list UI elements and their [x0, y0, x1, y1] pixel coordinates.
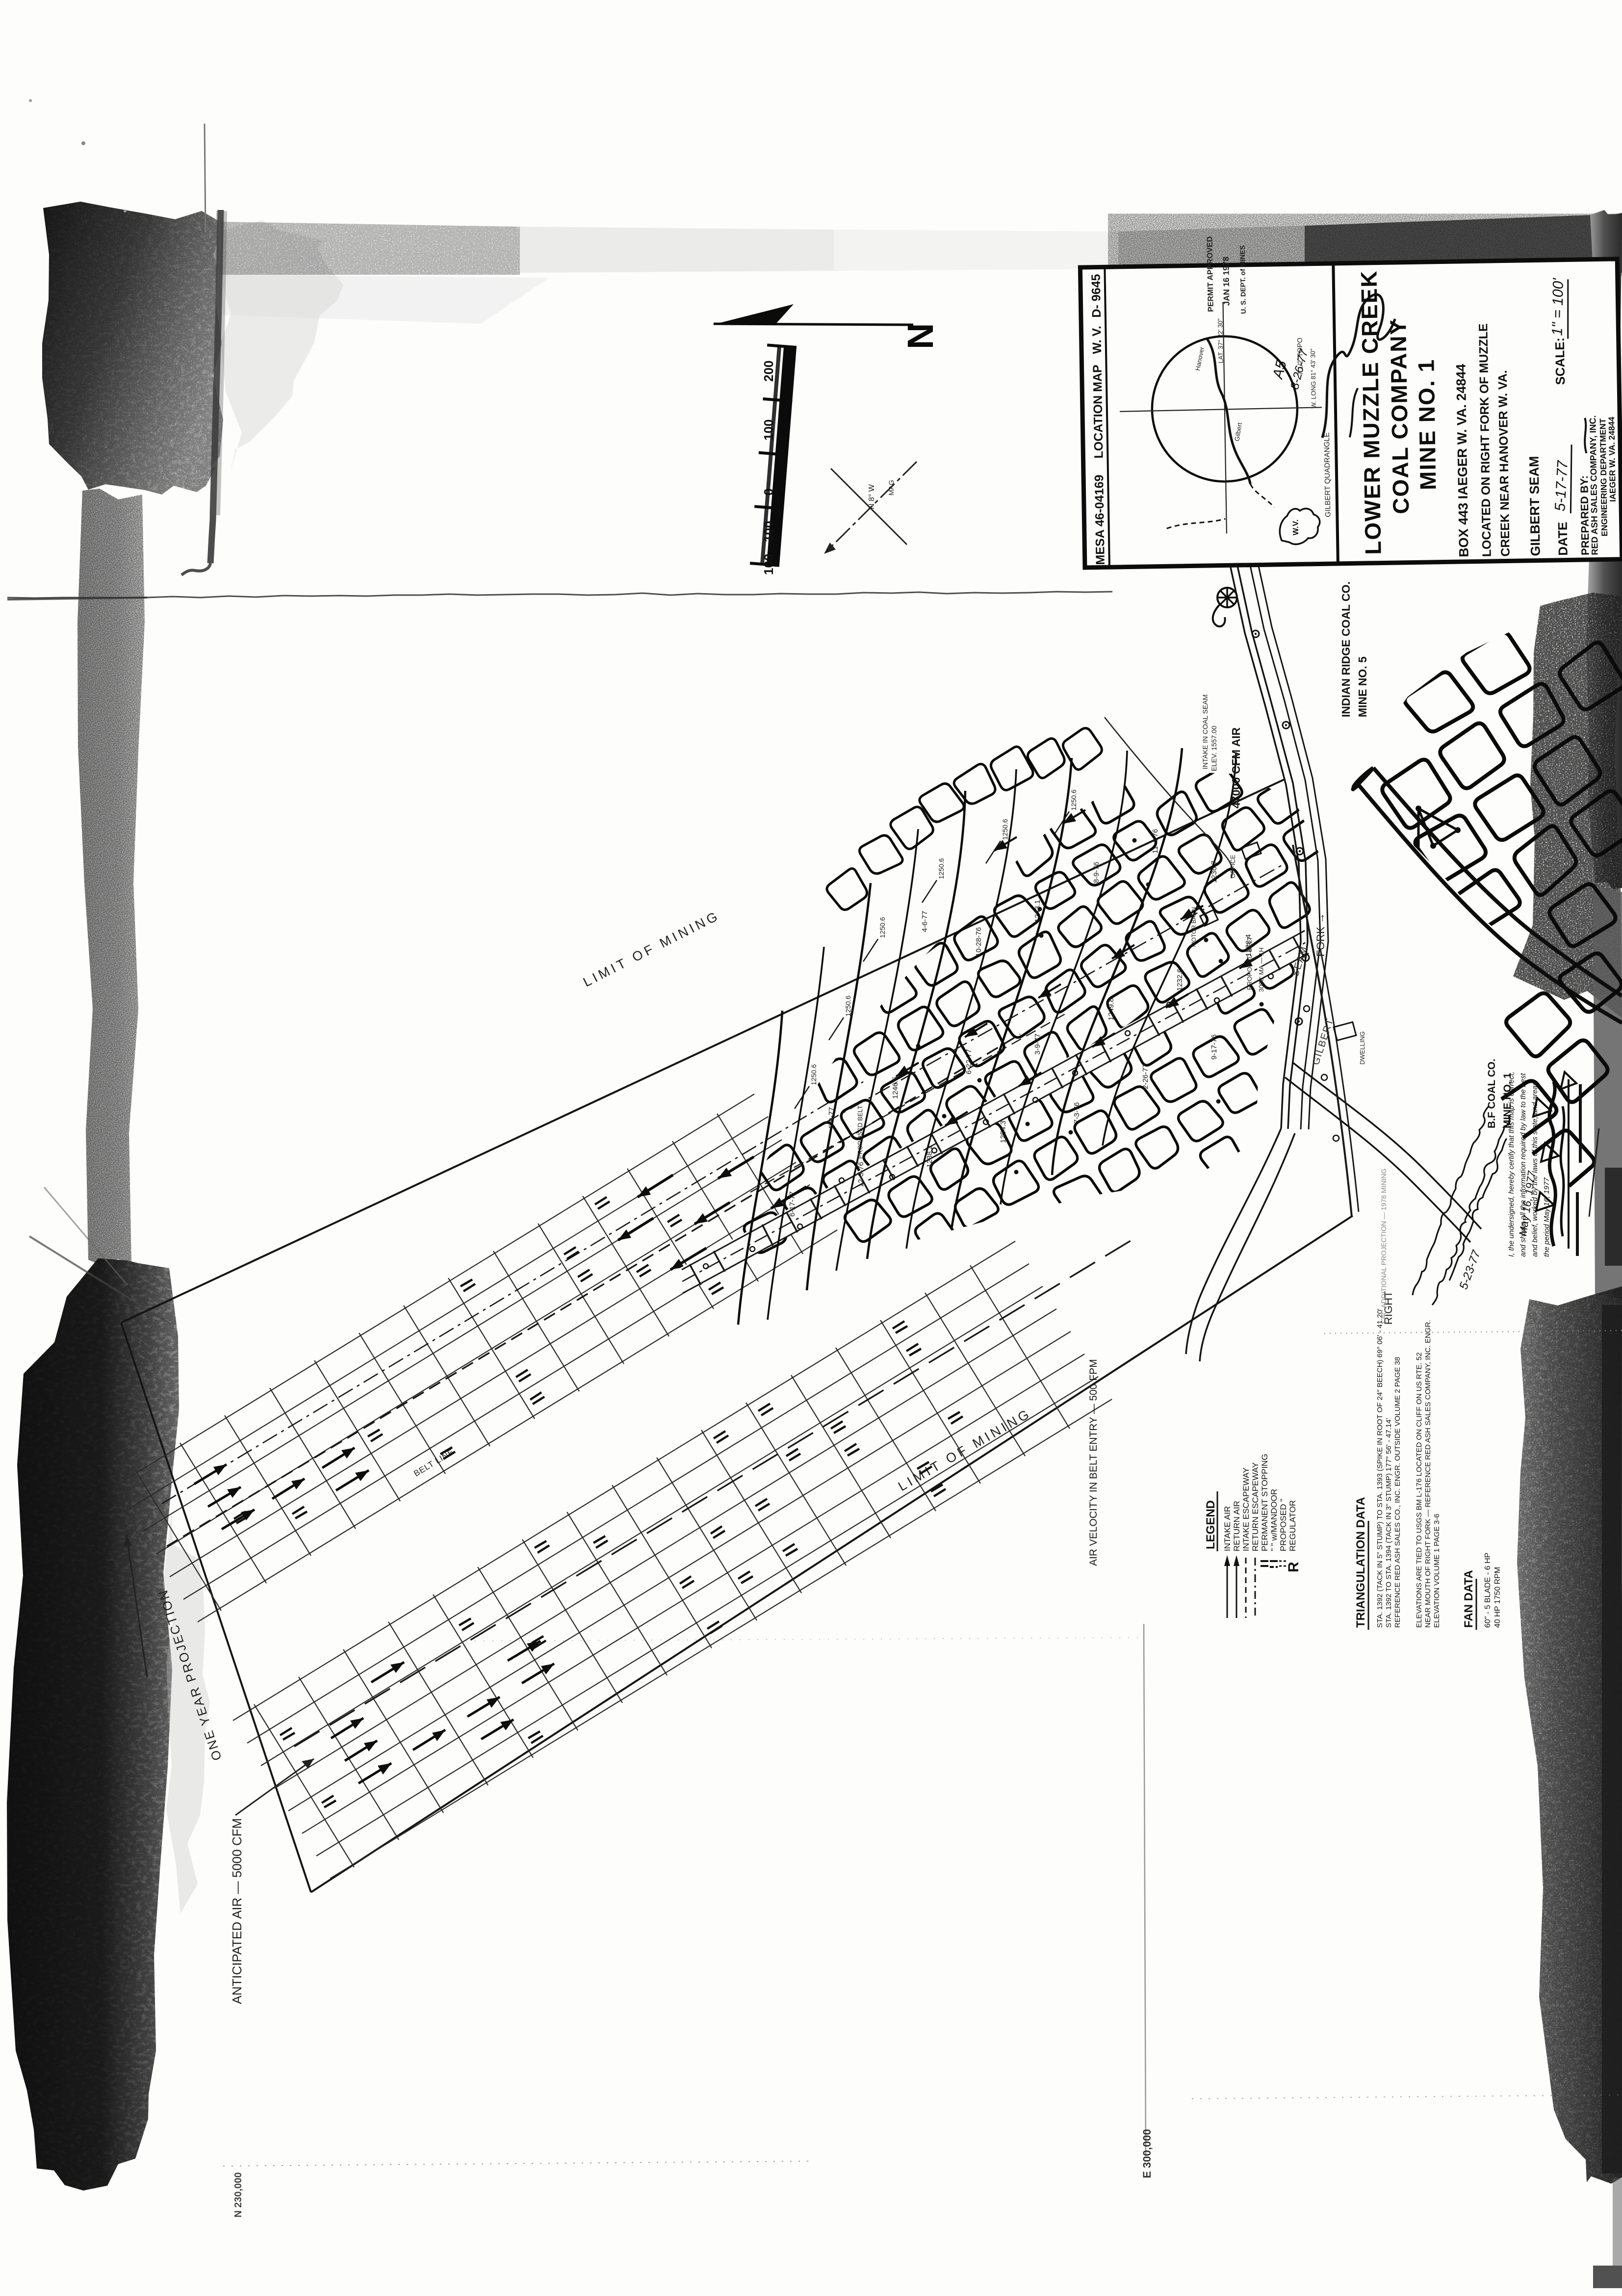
- svg-text:1250.6: 1250.6: [878, 917, 886, 938]
- svg-text:JAN 16 1978: JAN 16 1978: [1221, 257, 1232, 306]
- svg-text:D- 9645: D- 9645: [1089, 274, 1104, 317]
- svg-text:1250.6: 1250.6: [937, 858, 945, 879]
- svg-text:DWELLING: DWELLING: [1359, 1031, 1366, 1065]
- svg-text:SCALE:: SCALE:: [1552, 338, 1568, 385]
- svg-text:1232.6: 1232.6: [1176, 968, 1184, 991]
- svg-text:1" = 100': 1" = 100': [1549, 278, 1567, 336]
- svg-text:PROPOSED BELT: PROPOSED BELT: [1246, 937, 1253, 990]
- svg-text:12-3-76: 12-3-76: [857, 1162, 865, 1187]
- svg-text:5-9-77: 5-9-77: [827, 1107, 836, 1128]
- svg-text:RETURN AIR: RETURN AIR: [1232, 1501, 1241, 1551]
- svg-text:INTAKE IN COAL SEAM: INTAKE IN COAL SEAM: [1201, 695, 1209, 769]
- svg-text:ELEV. 1557.00: ELEV. 1557.00: [1210, 726, 1218, 771]
- svg-text:BOX 443 IAEGER W. VA. 2484: BOX 443 IAEGER W. VA. 24844: [1454, 364, 1471, 557]
- svg-text:1243.1: 1243.1: [1033, 900, 1042, 922]
- svg-text:N 8° W: N 8° W: [868, 484, 876, 509]
- svg-text:FAN DATA: FAN DATA: [1462, 1570, 1475, 1628]
- svg-text:2-26-77: 2-26-77: [1141, 1064, 1150, 1089]
- svg-text:6-17-77: 6-17-77: [788, 1191, 797, 1217]
- svg-text:DATE: DATE: [1555, 522, 1571, 556]
- svg-text:47000 CFM AIR: 47000 CFM AIR: [1230, 727, 1242, 809]
- svg-text:OFFICE: OFFICE: [1229, 855, 1236, 878]
- svg-text:LOWER MUZZLE CREEK: LOWER MUZZLE CREEK: [1356, 270, 1386, 555]
- svg-text:TRIANGULATION DATA: TRIANGULATION DATA: [1354, 1497, 1367, 1628]
- svg-text:PROPOSED ": PROPOSED ": [1279, 1499, 1288, 1551]
- svg-text:GILBERT QUADRANGLE: GILBERT QUADRANGLE: [1323, 432, 1333, 517]
- svg-text:100: 100: [761, 554, 776, 575]
- svg-text:LOCATION MAP: LOCATION MAP: [1090, 365, 1106, 459]
- svg-text:1254.3: 1254.3: [999, 1121, 1007, 1143]
- svg-text:INTAKE ESCAPEWAY: INTAKE ESCAPEWAY: [1241, 1467, 1251, 1551]
- svg-text:INDIAN RIDGE COAL CO.: INDIAN RIDGE COAL CO.: [1339, 581, 1352, 717]
- svg-text:0: 0: [761, 489, 776, 496]
- svg-text:5-17-77: 5-17-77: [1552, 460, 1571, 512]
- svg-text:NEAR MOUTH OF RIGHT FORK — REF: NEAR MOUTH OF RIGHT FORK — REFERENCE RED…: [1424, 1320, 1432, 1628]
- svg-text:GILBERT SEAM: GILBERT SEAM: [1526, 456, 1543, 556]
- svg-text:AIR VELOCITY IN BELT ENTRY — 5: AIR VELOCITY IN BELT ENTRY — 500 FPM: [1088, 1359, 1099, 1566]
- svg-text:9-17-76: 9-17-76: [1210, 1034, 1218, 1060]
- svg-text:" " w/MANDOO: " " w/MANDOOR: [1269, 1489, 1279, 1551]
- svg-text:200: 200: [761, 361, 776, 382]
- svg-text:6-22-77: 6-22-77: [965, 1049, 973, 1074]
- svg-text:MOTOR BARN: MOTOR BARN: [1190, 907, 1197, 947]
- svg-text:1 AC ADDITIONAL PROJECTION: 1 AC ADDITIONAL PROJECTION — 1978 MINING: [1380, 1169, 1388, 1325]
- svg-text:1250.6: 1250.6: [1070, 789, 1078, 810]
- svg-text:1250.6: 1250.6: [844, 995, 852, 1017]
- svg-text:R: R: [1286, 1562, 1302, 1572]
- svg-text:W. LONG 81° 43' 30": W. LONG 81° 43' 30": [1309, 348, 1317, 409]
- svg-text:LEGEND: LEGEND: [1204, 1500, 1217, 1549]
- svg-text:ELEVATION VOLUME 1 PAGE 3-6: ELEVATION VOLUME 1 PAGE 3-6: [1433, 1513, 1441, 1628]
- svg-text:PERMIT APPROVED: PERMIT APPROVED: [1206, 236, 1215, 312]
- svg-text:3000' MA — 1H: 3000' MA — 1H: [1258, 947, 1265, 992]
- svg-text:11-4-76: 11-4-76: [1151, 829, 1159, 854]
- svg-text:REFERENCE RED ASH SALES CO.,: REFERENCE RED ASH SALES CO., INC. ENGR. …: [1393, 1357, 1402, 1628]
- svg-text:RETURN ESCAPEWAY: RETURN ESCAPEWAY: [1251, 1462, 1260, 1551]
- svg-text:1236.7: 1236.7: [1210, 861, 1218, 883]
- svg-text:40 HP 1750 RPM: 40 HP 1750 RPM: [1493, 1567, 1502, 1628]
- svg-text:100: 100: [761, 521, 776, 542]
- svg-text:B.F COAL CO.: B.F COAL CO.: [1486, 1059, 1497, 1128]
- svg-text:LAT. 37° 22' 30": LAT. 37° 22' 30": [1216, 318, 1224, 364]
- svg-text:E 300,000: E 300,000: [1141, 2129, 1153, 2178]
- svg-text:4-6-77: 4-6-77: [921, 911, 929, 932]
- svg-text:IAEGER W. VA. 24844: IAEGER W. VA. 24844: [1607, 417, 1618, 502]
- svg-text:60" - 5 BLADE - 6 HP: 60" - 5 BLADE - 6 HP: [1484, 1553, 1492, 1628]
- svg-text:1250.6: 1250.6: [1001, 819, 1009, 840]
- svg-text:I, the undersigned, hereby cer: I, the undersigned, hereby certify that …: [1507, 1071, 1516, 1257]
- svg-text:3-9-77: 3-9-77: [1033, 1034, 1042, 1055]
- svg-text:N 230,000: N 230,000: [233, 2172, 244, 2218]
- svg-text:COAL COMPANY: COAL COMPANY: [1385, 318, 1414, 514]
- svg-text:W.V.: W.V.: [1291, 520, 1300, 536]
- svg-text:1250.6: 1250.6: [810, 1064, 818, 1085]
- svg-text:INTAKE AIR: INTAKE AIR: [1223, 1506, 1232, 1551]
- svg-text:MINE NO. 1: MINE NO. 1: [1413, 359, 1441, 491]
- svg-text:the period May 16, 1977: the period May 16, 1977: [1543, 1177, 1551, 1257]
- svg-text:CREEK NEAR HANOVER W. VA.: CREEK NEAR HANOVER W. VA.: [1496, 370, 1513, 557]
- svg-text:1246.5: 1246.5: [891, 1076, 900, 1099]
- svg-text:MESA 46-04169: MESA 46-04169: [1092, 474, 1107, 565]
- svg-text:10-28-76: 10-28-76: [975, 927, 983, 957]
- svg-text:U. S. DEPT. of MINES: U. S. DEPT. of MINES: [1238, 245, 1247, 314]
- svg-text:W. V.: W. V.: [1090, 326, 1104, 354]
- svg-text:STA. 1392 (TACK IN 5" STUMP) T: STA. 1392 (TACK IN 5" STUMP) TO STA. 139…: [1376, 1308, 1384, 1628]
- svg-text:7-3-76: 7-3-76: [1073, 1102, 1081, 1123]
- svg-text:MAG: MAG: [887, 480, 895, 496]
- svg-text:1249.8: 1249.8: [1107, 998, 1115, 1020]
- svg-text:N: N: [900, 323, 941, 349]
- svg-text:8-9-76: 8-9-76: [1092, 862, 1101, 883]
- svg-text:ANTICIPATED AIR — 5000 CFM: ANTICIPATED AIR — 5000 CFM: [230, 1818, 244, 2004]
- svg-text:STA. 1392 TO STA. 1394 (TACK I: STA. 1392 TO STA. 1394 (TACK IN 3" STUMP…: [1385, 1418, 1393, 1628]
- svg-text:ELEVATIONS ARE TIED TO USGS B: ELEVATIONS ARE TIED TO USGS BM L-176 LOC…: [1415, 1352, 1423, 1628]
- svg-text:PERMANENT STOPPING: PERMANENT STOPPING: [1260, 1454, 1269, 1551]
- svg-text:MINE NO. 5: MINE NO. 5: [1356, 656, 1369, 717]
- svg-text:100: 100: [761, 419, 776, 441]
- svg-text:1238.2: 1238.2: [926, 1145, 934, 1168]
- svg-text:PROPOSED BELT: PROPOSED BELT: [856, 1105, 864, 1159]
- svg-text:REGULATOR: REGULATOR: [1288, 1500, 1297, 1551]
